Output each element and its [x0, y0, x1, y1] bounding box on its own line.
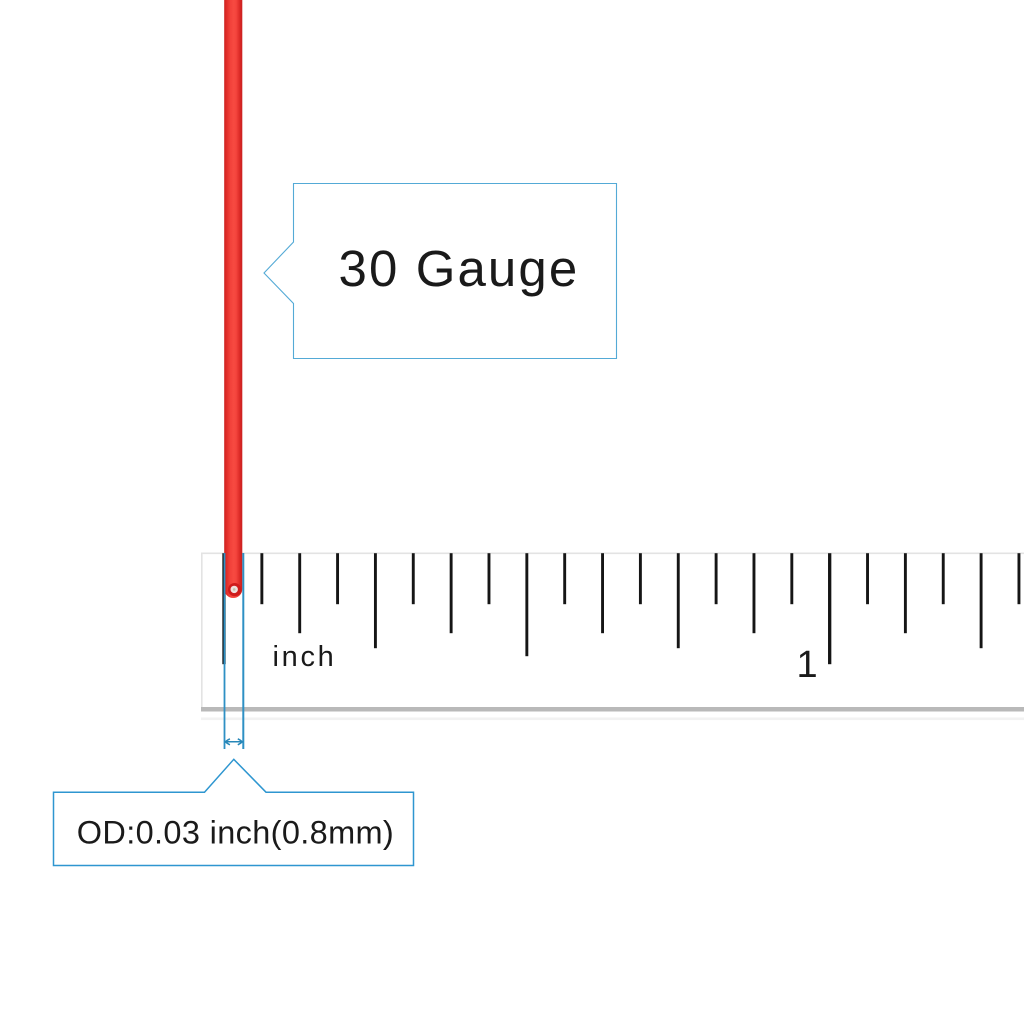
svg-text:30 Gauge: 30 Gauge: [339, 240, 580, 297]
svg-text:inch: inch: [273, 641, 337, 673]
svg-text:1: 1: [797, 644, 818, 686]
svg-text:OD:0.03 inch(0.8mm): OD:0.03 inch(0.8mm): [77, 814, 394, 850]
